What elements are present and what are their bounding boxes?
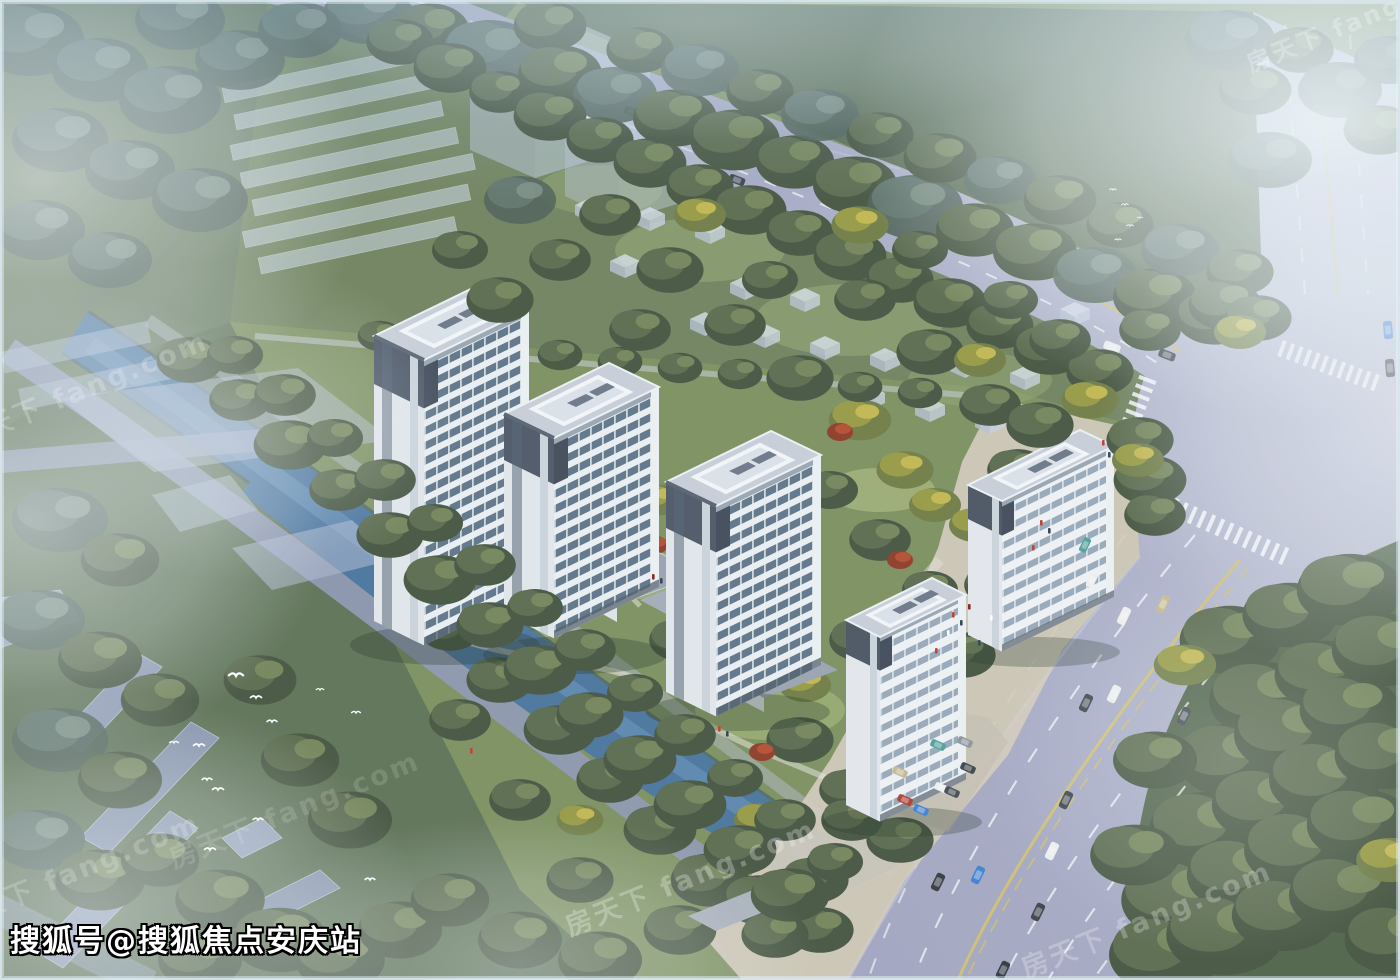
rendering-stage: 搜狐号@搜狐焦点安庆站 房天下 fang.com 房天下 fang.com 房天…	[0, 0, 1400, 980]
haze	[0, 0, 1400, 980]
rendering-svg	[0, 0, 1400, 980]
